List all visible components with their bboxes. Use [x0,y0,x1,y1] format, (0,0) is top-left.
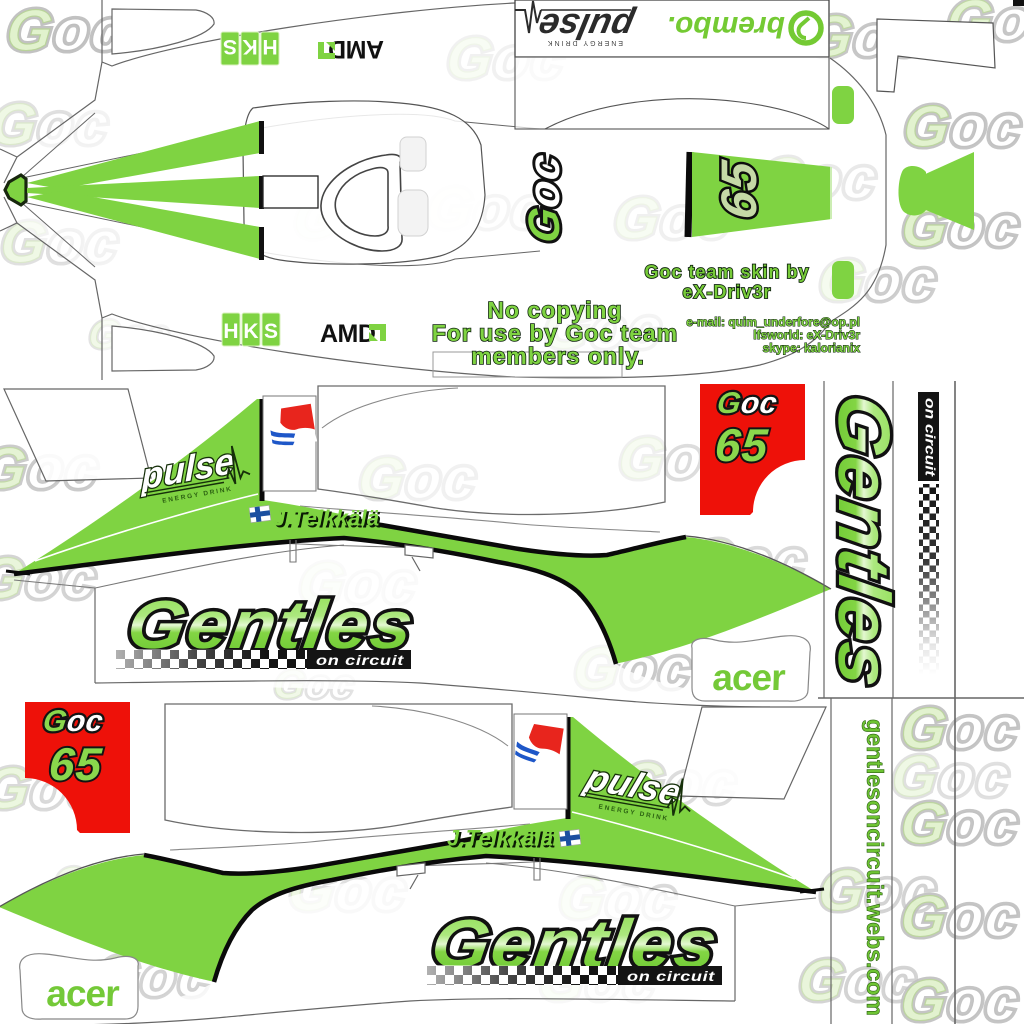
svg-text:65: 65 [713,419,770,471]
svg-text:e-mail: quim_underfore@op.pl: e-mail: quim_underfore@op.pl [686,315,860,329]
svg-text:brembo.: brembo. [667,10,785,43]
svg-text:Goc team skin by: Goc team skin by [644,262,809,282]
svg-text:H: H [223,320,238,343]
svg-text:J.Telkkälä: J.Telkkälä [273,506,379,531]
svg-text:skype: kalorianix: skype: kalorianix [763,341,861,355]
svg-text:gentlesoncircuit.webs.com: gentlesoncircuit.webs.com [862,719,888,1016]
svg-text:acer: acer [46,972,120,1014]
svg-text:acer: acer [712,656,786,698]
svg-text:eX-Driv3r: eX-Driv3r [682,282,771,302]
svg-text:on circuit: on circuit [923,398,938,477]
svg-text:AMD: AMD [320,320,375,348]
svg-text:AMD: AMD [329,35,384,63]
svg-text:Gentles: Gentles [823,390,905,693]
svg-text:Goc: Goc [715,387,779,420]
svg-text:oc: oc [520,150,569,210]
svg-text:K: K [242,35,257,58]
svg-text:65: 65 [47,738,104,790]
svg-text:S: S [223,35,237,58]
svg-text:Goc: Goc [41,705,105,738]
svg-text:ENERGY DRINK: ENERGY DRINK [546,39,623,46]
svg-text:S: S [264,320,278,343]
svg-text:H: H [262,35,277,58]
svg-text:lfsworld: eX-Driv3r: lfsworld: eX-Driv3r [753,328,860,342]
svg-text:K: K [243,320,258,343]
svg-text:members only.: members only. [471,343,645,369]
svg-text:J.Telkkälä: J.Telkkälä [447,826,553,851]
svg-text:65: 65 [711,157,767,222]
